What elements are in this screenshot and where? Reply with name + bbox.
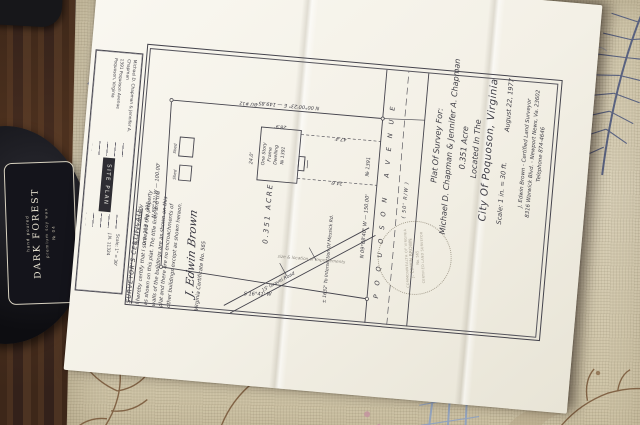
candle-label-text: hand poured DARK FOREST premium soy wax … (6, 167, 74, 299)
strip-rules-right (85, 212, 122, 229)
photo-of-plat-document: COR OLOGIE. (0, 0, 640, 425)
candle-label: hand poured DARK FOREST premium soy wax … (4, 161, 79, 305)
strip-title: SITE PLAN (99, 158, 116, 212)
strip-rules-left (91, 140, 128, 157)
plat-frame: Now Or Formerly D.B. 203 - Pg. 391 N 88°… (124, 44, 562, 341)
faint-note: size & location of improvements (277, 255, 287, 261)
strip-owner-block: Michael D. Chapman & Jennifer A. Chapman… (89, 52, 140, 142)
surveyor-certificate: SURVEYOR'S CERTIFICATE I hereby certify … (124, 179, 216, 311)
strip-fields: Scale: 1" = 30' J.N. 11324 (76, 228, 125, 294)
dim-a: 24.0' (249, 152, 256, 164)
dwelling-label: One Story Frame Dwelling № 1391 (260, 130, 289, 179)
shed2-label: Shed (173, 143, 178, 153)
plat-document: Michael D. Chapman & Jennifer A. Chapman… (64, 0, 603, 414)
shed1-label: Shed (173, 169, 178, 179)
bearing-west: S 16°41' W (244, 292, 272, 298)
